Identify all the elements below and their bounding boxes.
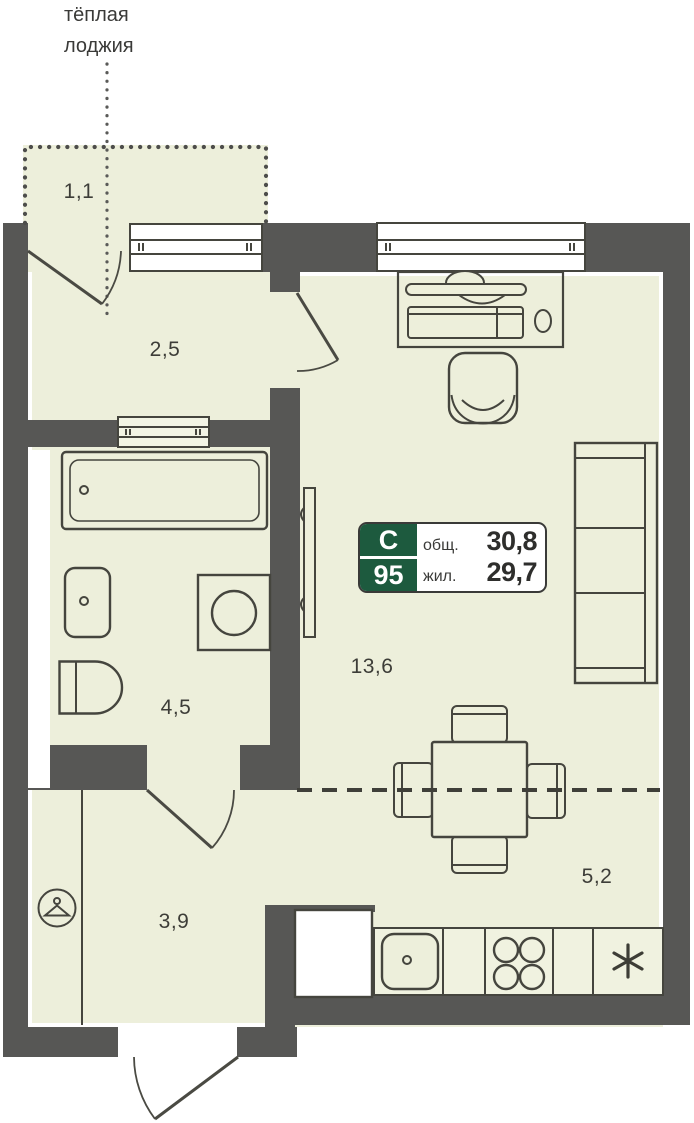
total-area-value: 30,8 (486, 526, 537, 557)
area-label-living-room: 13,6 (351, 655, 394, 679)
entrance-door (134, 1057, 238, 1119)
badge-type-panel: С 95 (360, 524, 417, 591)
living-area-value: 29,7 (486, 557, 537, 588)
wall-right (663, 272, 690, 1025)
kitchen-counter (374, 928, 663, 995)
tv-icon (301, 488, 315, 637)
flat-type: С (360, 524, 417, 556)
area-label-bathroom: 4,5 (161, 696, 192, 720)
living-area-label: жил. (423, 568, 456, 586)
toilet-icon (60, 662, 123, 714)
office-chair-icon (449, 353, 517, 424)
floor-plan-drawing (0, 0, 694, 1123)
loggia-area (23, 145, 268, 223)
floor-plan: тёплая лоджия 1,1 2,5 4,5 13,6 5,2 3,9 С… (0, 0, 694, 1123)
kitchen-sink-icon (382, 934, 438, 989)
wall-bottom-kitchen (295, 995, 690, 1025)
sofa-icon (575, 443, 657, 683)
area-label-kitchen: 5,2 (582, 865, 613, 889)
duct-channel (28, 450, 50, 788)
loggia-note: тёплая лоджия (64, 0, 174, 62)
balcony-door-opening (28, 223, 130, 272)
window-living-icon (377, 223, 585, 271)
wall-bottom-left (3, 1027, 118, 1057)
bathroom-door-opening (147, 745, 240, 790)
area-label-entry-hall: 3,9 (159, 910, 190, 934)
living-area-row: жил. 29,7 (423, 557, 537, 588)
total-area-row: общ. 30,8 (423, 526, 537, 557)
bathtub-icon (62, 452, 267, 529)
area-label-loggia: 1,1 (64, 180, 95, 204)
wall-bottom-mid (237, 1027, 297, 1057)
vent-window-icon (118, 417, 209, 447)
chair-bottom-icon (452, 836, 507, 873)
washing-machine-icon (198, 575, 270, 650)
floor-base (23, 145, 663, 1027)
vent-shaft (295, 910, 372, 997)
total-area-label: общ. (423, 537, 459, 555)
wall-left (3, 272, 28, 1057)
monitor-icon (406, 284, 526, 295)
badge-areas-panel: общ. 30,8 жил. 29,7 (417, 524, 545, 591)
bathroom-sink-icon (65, 568, 110, 637)
mouse-icon (535, 310, 551, 332)
interior-door-opening (270, 292, 300, 388)
window-hallway-icon (130, 224, 262, 271)
keyboard-icon (408, 307, 523, 338)
flat-number: 95 (360, 559, 417, 591)
area-label-hallway: 2,5 (150, 338, 181, 362)
chair-top-icon (452, 706, 507, 743)
apartment-info-badge: С 95 общ. 30,8 жил. 29,7 (358, 522, 547, 593)
